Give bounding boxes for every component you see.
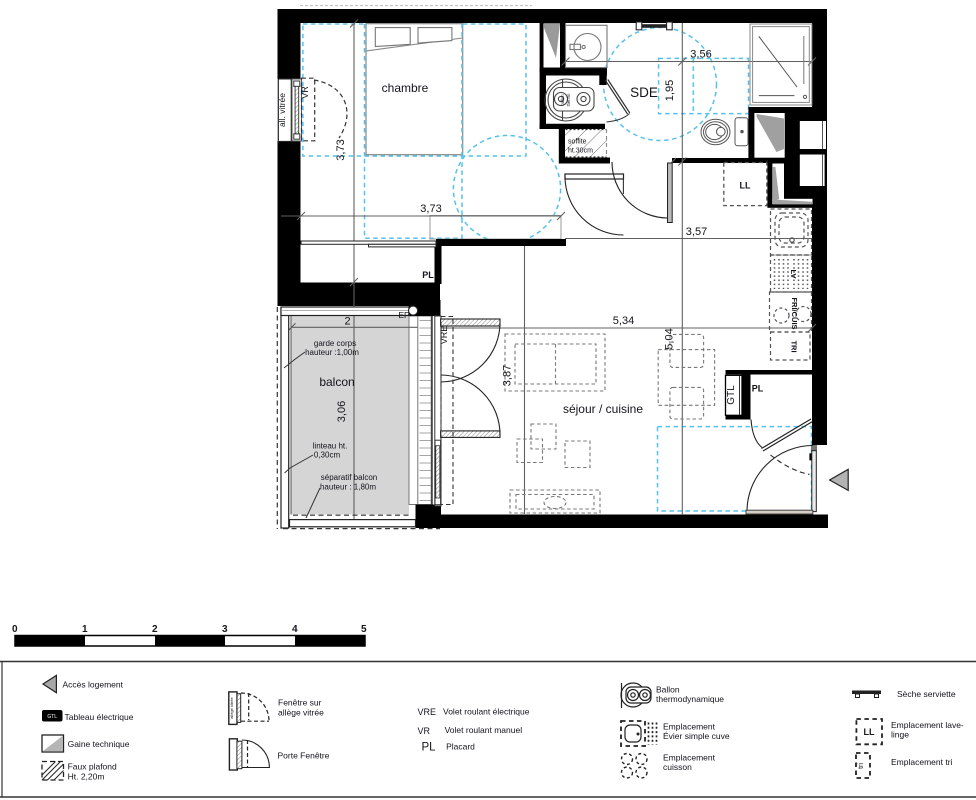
- svg-text:LL: LL: [864, 727, 875, 737]
- svg-text:GTL: GTL: [47, 714, 57, 720]
- svg-text:VRE: VRE: [418, 707, 437, 717]
- svg-text:LL: LL: [740, 181, 751, 191]
- svg-text:5,34: 5,34: [613, 315, 634, 327]
- svg-text:séjour / cuisine: séjour / cuisine: [563, 402, 643, 416]
- svg-text:Gaine technique: Gaine technique: [68, 739, 130, 749]
- svg-text:PL: PL: [422, 270, 434, 280]
- svg-text:2: 2: [344, 316, 350, 328]
- svg-text:LV: LV: [789, 269, 798, 278]
- svg-text:Emplacement lave-: Emplacement lave-: [891, 720, 964, 730]
- svg-text:linteau ht.: linteau ht.: [313, 442, 348, 451]
- svg-text:Sèche serviette: Sèche serviette: [897, 689, 956, 699]
- svg-text:3,56: 3,56: [690, 49, 711, 61]
- svg-text:VRE: VRE: [439, 326, 449, 345]
- svg-text:2: 2: [152, 624, 158, 635]
- svg-text:Faux plafond: Faux plafond: [68, 762, 117, 772]
- svg-text:ht.30cm: ht.30cm: [568, 148, 593, 155]
- svg-text:hauteur :1,00m: hauteur :1,00m: [305, 348, 359, 357]
- svg-text:Fenêtre sur: Fenêtre sur: [278, 698, 322, 708]
- svg-text:EP: EP: [398, 310, 410, 320]
- svg-text:5: 5: [361, 624, 367, 635]
- svg-text:allège vitrée: allège vitrée: [278, 708, 324, 718]
- svg-text:garde corps: garde corps: [314, 339, 356, 348]
- svg-text:3,73: 3,73: [420, 203, 441, 215]
- svg-text:3: 3: [222, 624, 228, 635]
- svg-text:SDE: SDE: [630, 85, 658, 100]
- svg-text:hauteur : 1,80m: hauteur : 1,80m: [320, 483, 376, 492]
- svg-text:3,06: 3,06: [336, 401, 348, 422]
- svg-text:Porte Fenêtre: Porte Fenêtre: [278, 751, 330, 761]
- svg-text:TRI: TRI: [790, 340, 799, 352]
- svg-text:séparatif balcon: séparatif balcon: [321, 473, 377, 482]
- svg-text:tri: tri: [858, 763, 865, 769]
- svg-text:Ballon: Ballon: [656, 685, 680, 695]
- svg-text:GTL: GTL: [726, 385, 737, 405]
- svg-text:Accès logement: Accès logement: [63, 680, 124, 690]
- svg-text:VR: VR: [418, 726, 431, 736]
- svg-text:PL: PL: [752, 384, 764, 394]
- svg-text:Emplacement tri: Emplacement tri: [891, 757, 953, 767]
- svg-text:Évier simple cuve: Évier simple cuve: [663, 731, 730, 741]
- svg-text:Emplacement: Emplacement: [663, 722, 716, 732]
- svg-text:VR: VR: [300, 86, 310, 99]
- svg-text:Tableau électrique: Tableau électrique: [65, 712, 134, 722]
- svg-text:all. vitrée: all. vitrée: [277, 93, 287, 127]
- svg-text:1,95: 1,95: [664, 80, 676, 101]
- svg-text:cuisson: cuisson: [663, 762, 692, 772]
- svg-text:4: 4: [292, 624, 298, 635]
- svg-text:PL: PL: [422, 742, 437, 754]
- svg-text:3,73: 3,73: [335, 139, 347, 160]
- svg-text:Volet roulant manuel: Volet roulant manuel: [445, 725, 523, 735]
- svg-text:0,30cm: 0,30cm: [314, 451, 341, 460]
- svg-text:linge: linge: [891, 730, 909, 740]
- svg-text:balcon: balcon: [319, 375, 354, 389]
- svg-text:thermo: thermo: [566, 93, 571, 107]
- svg-text:FRI/CUIS: FRI/CUIS: [790, 297, 799, 329]
- svg-text:1: 1: [82, 624, 88, 635]
- svg-text:thermodynamique: thermodynamique: [656, 694, 724, 704]
- svg-text:3,57: 3,57: [686, 226, 707, 238]
- svg-text:0: 0: [12, 624, 18, 635]
- svg-text:Ht. 2,20m: Ht. 2,20m: [68, 772, 105, 782]
- svg-text:5,04: 5,04: [664, 328, 676, 349]
- svg-text:soffite: soffite: [568, 139, 587, 146]
- svg-text:Emplacement: Emplacement: [663, 753, 716, 763]
- svg-text:3,87: 3,87: [502, 365, 514, 386]
- svg-text:allège vitrée: allège vitrée: [229, 696, 234, 718]
- svg-text:ballon: ballon: [560, 94, 565, 106]
- svg-text:chambre: chambre: [382, 81, 429, 95]
- svg-text:Volet roulant électrique: Volet roulant électrique: [443, 707, 530, 717]
- svg-text:Placard: Placard: [446, 742, 475, 752]
